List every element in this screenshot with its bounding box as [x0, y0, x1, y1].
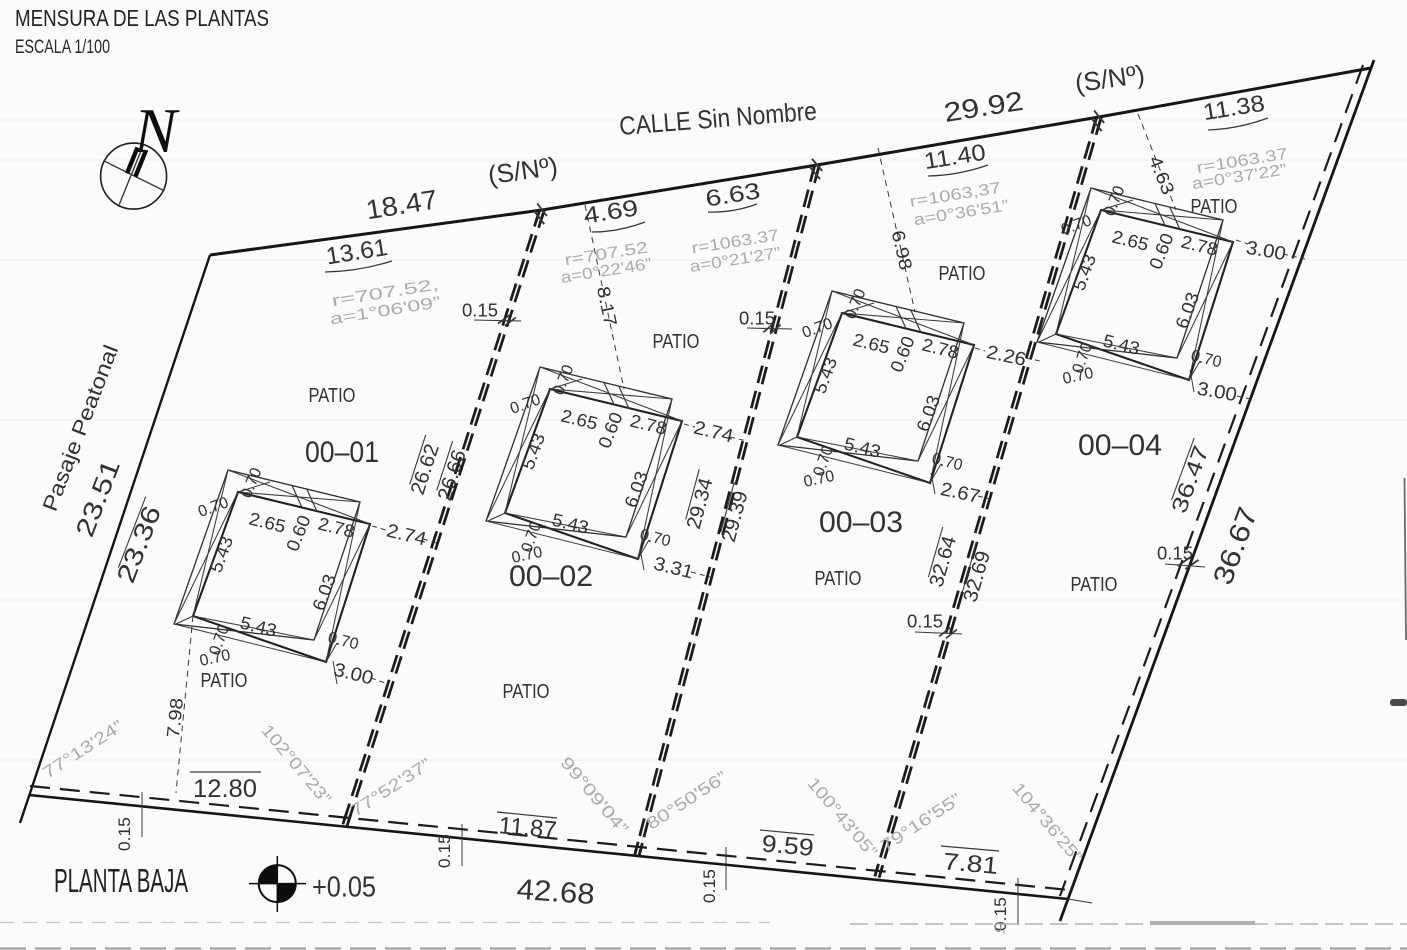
svg-text:PATIO: PATIO	[815, 568, 862, 590]
svg-text:PATIO: PATIO	[309, 385, 356, 407]
svg-text:PATIO: PATIO	[201, 670, 248, 692]
svg-text:7.81: 7.81	[942, 848, 999, 880]
svg-text:PLANTA BAJA: PLANTA BAJA	[54, 862, 188, 899]
svg-text:ESCALA 1/100: ESCALA 1/100	[15, 37, 110, 58]
svg-text:42.68: 42.68	[516, 874, 596, 911]
svg-text:0.15: 0.15	[700, 869, 719, 903]
svg-text:PATIO: PATIO	[1191, 196, 1238, 218]
svg-text:PATIO: PATIO	[503, 681, 550, 703]
svg-text:0.15: 0.15	[435, 834, 454, 868]
svg-text:0.15: 0.15	[1157, 544, 1193, 564]
svg-text:PATIO: PATIO	[939, 263, 986, 285]
svg-text:00–04: 00–04	[1078, 429, 1162, 462]
svg-text:MENSURA DE LAS PLANTAS: MENSURA DE LAS PLANTAS	[15, 5, 269, 31]
svg-text:00–02: 00–02	[509, 560, 593, 593]
svg-text:0,: 0,	[994, 919, 1006, 935]
svg-text:12.80: 12.80	[193, 775, 257, 803]
svg-text:9.59: 9.59	[761, 830, 815, 861]
svg-text:0.15: 0.15	[907, 612, 943, 632]
svg-text:0.15: 0.15	[462, 301, 498, 321]
svg-text:00–03: 00–03	[819, 506, 903, 539]
svg-text:+0.05: +0.05	[312, 871, 376, 903]
svg-text:N: N	[133, 95, 180, 166]
svg-text:0.15: 0.15	[739, 309, 775, 329]
svg-text:PATIO: PATIO	[1071, 574, 1118, 596]
svg-text:7.98: 7.98	[163, 697, 187, 739]
svg-text:00–01: 00–01	[305, 436, 379, 469]
svg-text:0.15: 0.15	[115, 817, 134, 851]
svg-text:PATIO: PATIO	[653, 331, 700, 353]
